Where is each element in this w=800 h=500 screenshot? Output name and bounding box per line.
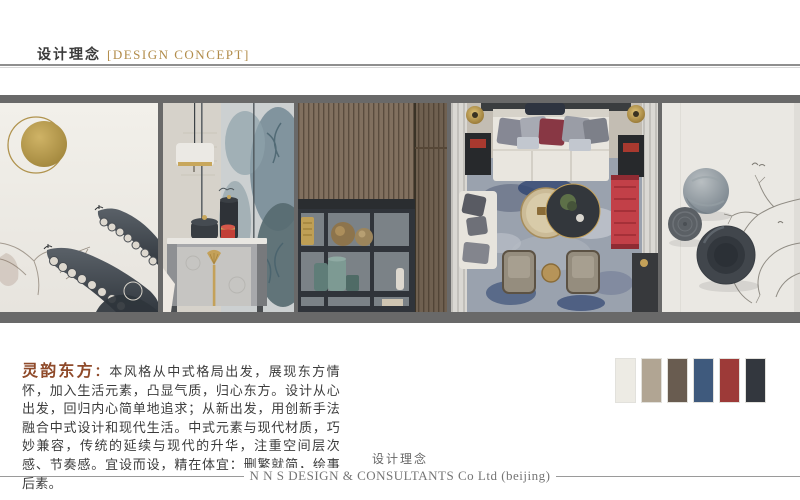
red-tea-jar xyxy=(221,225,235,241)
maroon-pillow xyxy=(538,118,566,146)
footer-company: N N S DESIGN & CONSULTANTS Co Ltd (beiji… xyxy=(0,468,800,484)
concept-lead: 灵韵东方 xyxy=(22,363,95,380)
armchair-left xyxy=(503,251,535,293)
photo-wood-slat-shelf xyxy=(298,103,447,312)
coffee-tables xyxy=(521,184,600,238)
moon-eaves-illustration xyxy=(0,103,158,312)
cabinet-illustration xyxy=(163,103,294,312)
header-divider xyxy=(0,64,800,66)
stacked-books xyxy=(382,299,403,306)
palette-swatch-off-white xyxy=(615,358,636,403)
shelf-illustration xyxy=(298,103,447,312)
red-chaise xyxy=(611,175,639,249)
page-title-en: [DESIGN CONCEPT] xyxy=(107,47,250,62)
side-table-right xyxy=(618,135,644,177)
nightstand xyxy=(167,238,267,312)
page-title-cn: 设计理念 xyxy=(37,48,101,63)
disc-art-illustration xyxy=(662,103,800,312)
palette-swatch-warm-taupe xyxy=(641,358,662,403)
palette-swatch-steel-blue xyxy=(693,358,714,403)
gold-ornament xyxy=(301,217,314,245)
left-chaise xyxy=(459,191,497,269)
gold-stool xyxy=(542,264,560,282)
palette-swatch-dark-brown xyxy=(667,358,688,403)
design-concept-slide: 设计理念[DESIGN CONCEPT] xyxy=(0,0,800,500)
photo-living-room-top-view xyxy=(451,103,658,312)
side-table-left xyxy=(465,133,491,175)
concept-separator: ： xyxy=(95,364,110,379)
footer-title: 设计理念 xyxy=(0,450,800,467)
footer-company-name: N N S DESIGN & CONSULTANTS Co Ltd (beiji… xyxy=(244,468,557,483)
header-divider-shadow xyxy=(0,67,800,68)
scroll xyxy=(396,268,404,290)
dark-throw-pillow xyxy=(525,103,565,115)
photo-moon-and-eaves-art xyxy=(0,103,158,312)
palette-swatch-charcoal xyxy=(745,358,766,403)
page-title: 设计理念[DESIGN CONCEPT] xyxy=(37,44,250,64)
photo-chinoiserie-cabinet xyxy=(163,103,294,312)
wood-slat-wall xyxy=(298,103,415,205)
photo-disc-wall-art xyxy=(662,103,800,312)
palette xyxy=(615,358,766,403)
armchair-right xyxy=(567,251,599,293)
main-sofa xyxy=(493,103,610,181)
palette-swatch-brick-red xyxy=(719,358,740,403)
panel-seam xyxy=(253,103,255,241)
living-room-illustration xyxy=(451,103,658,312)
